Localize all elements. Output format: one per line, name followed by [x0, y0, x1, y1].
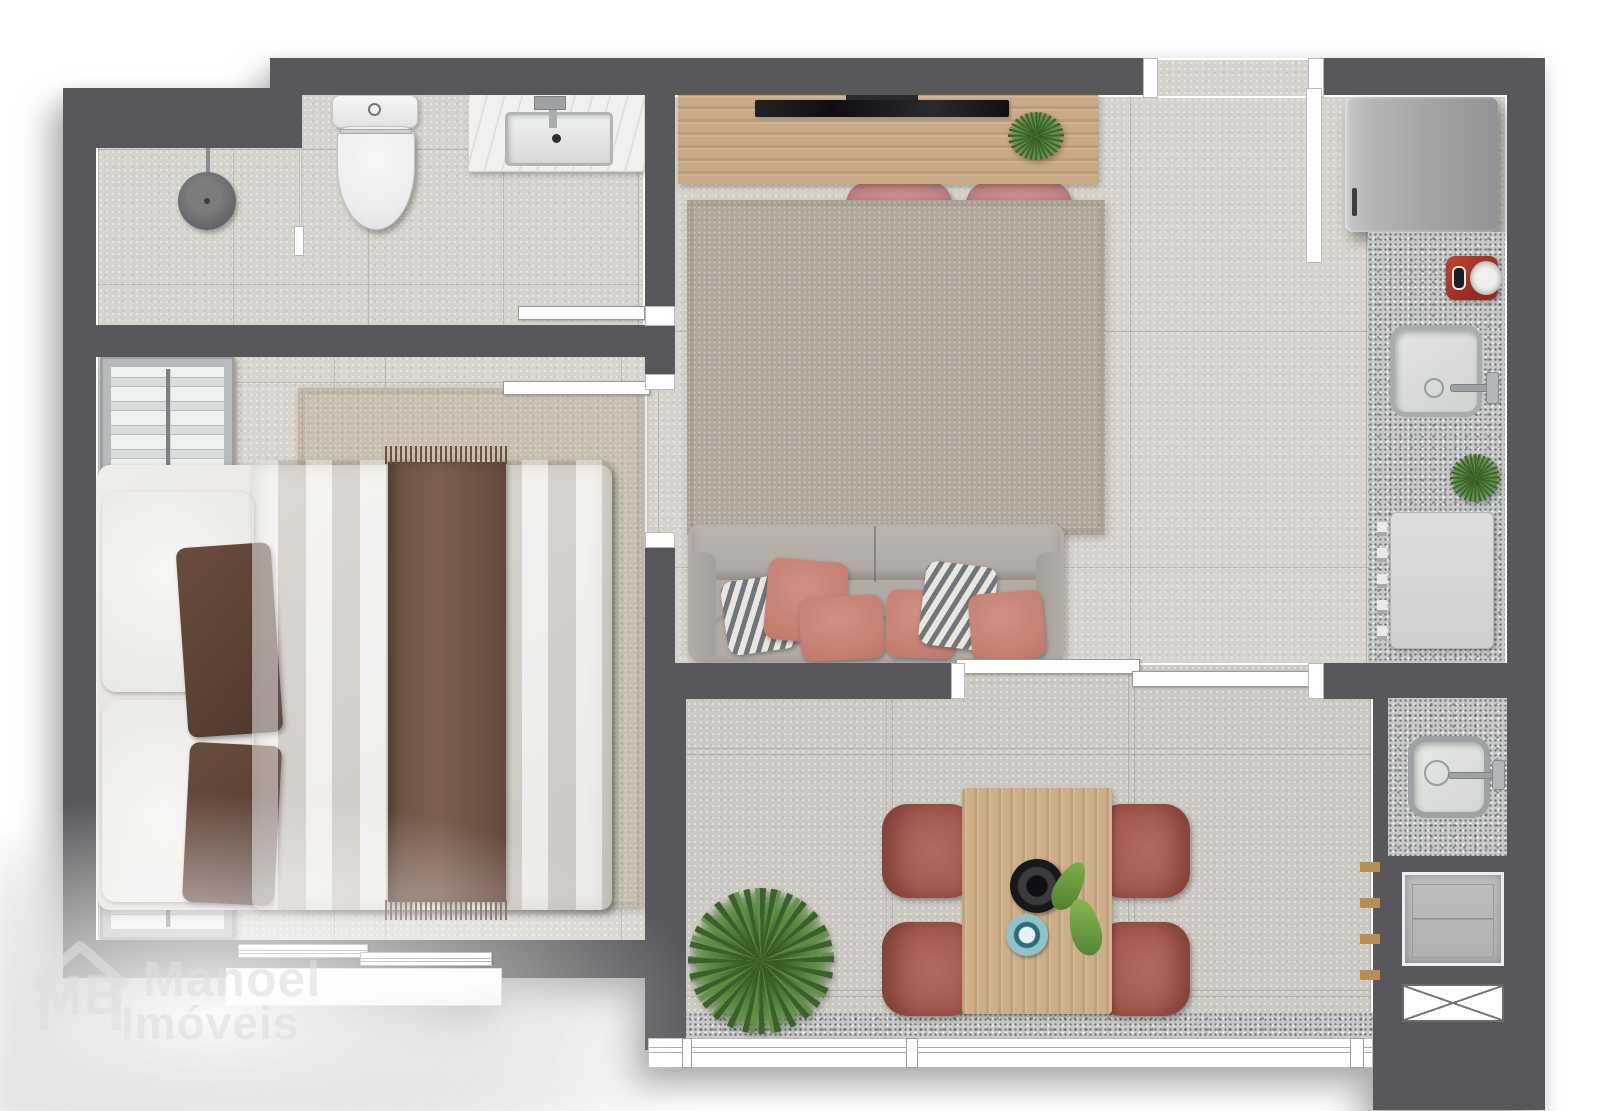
kitchen-faucet-handle — [1486, 372, 1499, 404]
sofa-back-cushions — [692, 526, 1060, 580]
kitchen-counter-plant — [1450, 454, 1500, 502]
wall-top-bathroom — [270, 58, 675, 95]
bed-throw-fringe-top — [385, 446, 509, 464]
wall-hall-upper — [645, 95, 675, 390]
bedroom-door-jamb-top — [645, 374, 675, 390]
refrigerator — [1345, 97, 1498, 232]
apartment-floor-plan: MB Manoel Imóveis — [0, 0, 1600, 1111]
bedroom-door-jamb-bottom — [645, 532, 675, 548]
laundry-faucet — [1448, 772, 1498, 779]
sofa-back-split — [874, 526, 876, 582]
laundry-sink-drain — [1424, 760, 1450, 786]
coffee-maker-lid — [1470, 261, 1502, 295]
bathroom-sliding-door — [518, 306, 645, 320]
shower-drain-dot — [204, 198, 210, 204]
vanity-drain — [552, 134, 561, 143]
railing-mullion-2 — [906, 1038, 918, 1068]
tv — [755, 100, 1009, 117]
wall-top-shower — [63, 88, 302, 148]
entry-partition-wall — [1306, 88, 1322, 263]
gas-cooktop — [1390, 512, 1494, 649]
balcony-door-jamb-left — [951, 663, 965, 699]
laundry-faucet-handle — [1492, 760, 1505, 790]
bathroom-door-jamb — [645, 306, 675, 326]
shelf-bracket-4 — [1360, 970, 1380, 980]
shelf-bracket-2 — [1360, 898, 1380, 908]
refrigerator-handle — [1352, 188, 1357, 216]
kitchen-sink-drain — [1424, 378, 1444, 398]
floor-plan-canvas: MB Manoel Imóveis — [0, 0, 1600, 1111]
console-plant — [1008, 112, 1064, 160]
kitchen-sink — [1390, 325, 1482, 417]
washing-machine-lid — [1412, 884, 1494, 958]
toilet-seat-hinge — [340, 129, 412, 134]
balcony-sliding-panel-2 — [1132, 671, 1314, 687]
sofa-arm-left — [688, 552, 716, 660]
sofa-pillow-salmon-2 — [798, 594, 885, 662]
vanity-faucet — [534, 96, 566, 110]
teal-plate — [1006, 914, 1048, 956]
shower-glass-handle — [294, 226, 304, 256]
entry-threshold-floor — [1145, 58, 1322, 98]
duct-shaft-symbol — [1402, 984, 1504, 1022]
wall-sofa-back — [645, 663, 965, 699]
vanity-faucet-spout — [549, 108, 557, 128]
entry-jamb-left — [1143, 58, 1158, 98]
cooktop-knobs — [1377, 522, 1387, 644]
brand-name-line2: Imóveis — [121, 996, 299, 1050]
wall-bath-bedroom-divider — [96, 325, 672, 357]
balcony-sliding-panel-1 — [956, 659, 1140, 674]
wall-top-living — [675, 58, 1145, 95]
toilet-flush-button — [368, 103, 381, 116]
shelf-bracket-3 — [1360, 934, 1380, 944]
balcony-door-jamb-right — [1308, 663, 1324, 699]
shelf-bracket-1 — [1360, 862, 1380, 872]
coffee-maker-slot — [1452, 266, 1466, 290]
brand-logo-initials: MB — [36, 962, 125, 1027]
railing-mullion-3 — [1350, 1038, 1364, 1068]
sofa-pillow-salmon-4 — [967, 589, 1047, 663]
bedroom-sliding-door — [503, 381, 650, 395]
living-room-rug — [687, 200, 1105, 535]
